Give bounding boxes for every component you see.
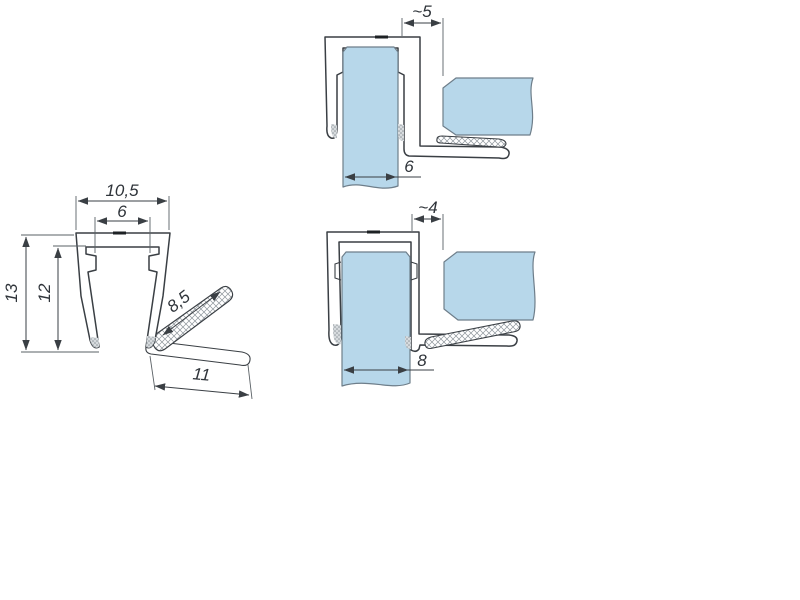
- soft-tip-right: [398, 124, 404, 141]
- soft-lip-6mm: [437, 136, 506, 147]
- drawing-canvas: 10,5 6 13 12 8,5: [0, 0, 800, 600]
- technical-drawing-svg: 10,5 6 13 12 8,5: [0, 0, 800, 600]
- dim-label-inner-height: 12: [35, 283, 54, 302]
- detail-8mm: ~4 8: [327, 198, 535, 386]
- door-glass-8mm: [342, 252, 410, 386]
- profile-soft-flap: [152, 286, 233, 350]
- soft-tip-left: [90, 337, 99, 348]
- dim-label-glass-6mm: 6: [404, 157, 414, 176]
- fixed-glass-8mm: [444, 252, 535, 320]
- dim-label-arm-length: 11: [192, 364, 211, 384]
- detail-6mm: ~5 6: [325, 2, 533, 188]
- door-glass-6mm: [343, 47, 398, 188]
- dim-label-channel-width: 6: [117, 202, 127, 221]
- dim-label-gap-6mm: ~5: [412, 2, 432, 21]
- dim-label-top-width: 10,5: [105, 181, 139, 200]
- dim-label-outer-height: 13: [2, 283, 21, 302]
- profile-cross-section: 10,5 6 13 12 8,5: [2, 181, 252, 399]
- fixed-glass-6mm: [443, 78, 533, 135]
- profile-body: [76, 233, 170, 348]
- dim-label-glass-8mm: 8: [417, 351, 427, 370]
- dim-label-gap-8mm: ~4: [418, 198, 437, 217]
